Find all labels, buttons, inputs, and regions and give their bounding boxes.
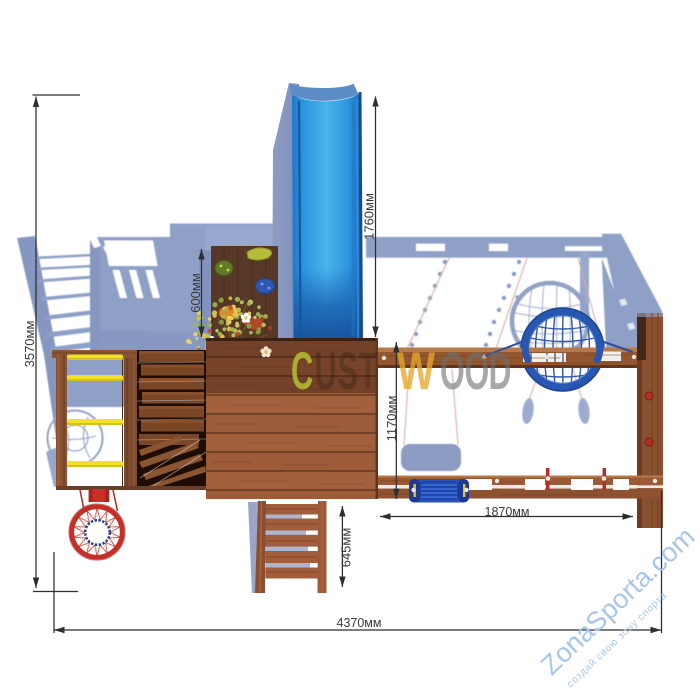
svg-text:W: W [397, 341, 436, 401]
svg-text:600мм: 600мм [188, 273, 203, 313]
svg-text:O: O [440, 342, 465, 401]
svg-text:1170мм: 1170мм [384, 396, 399, 442]
svg-text:U: U [315, 343, 337, 402]
svg-text:4370мм: 4370мм [337, 616, 382, 630]
svg-text:1870мм: 1870мм [485, 505, 530, 519]
svg-text:S: S [338, 343, 358, 402]
svg-text:C: C [291, 343, 313, 402]
svg-text:ZonaSporta.com: ZonaSporta.com [535, 521, 700, 680]
svg-text:3570мм: 3570мм [22, 321, 37, 368]
svg-text:O: O [465, 342, 490, 401]
svg-text:645мм: 645мм [339, 528, 354, 568]
svg-text:1760мм: 1760мм [362, 193, 377, 240]
svg-text:T: T [359, 343, 378, 402]
svg-text:D: D [489, 342, 512, 401]
